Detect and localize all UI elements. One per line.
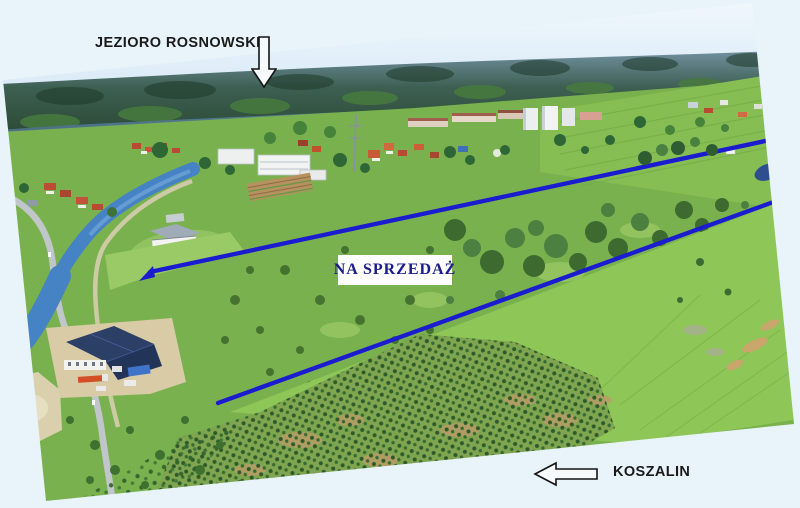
lake-name-label: JEZIORO ROSNOWSKIE xyxy=(95,35,271,51)
for-sale-badge: NA SPRZEDAŻ xyxy=(338,255,452,285)
aerial-photo xyxy=(0,0,800,508)
direction-arrow-down-icon xyxy=(251,36,277,88)
direction-arrow-left-icon xyxy=(533,461,599,487)
real-estate-aerial-banner: JEZIORO ROSNOWSKIE NA SPRZEDAŻ KOSZALIN xyxy=(0,0,800,508)
city-name-label: KOSZALIN xyxy=(613,464,690,480)
